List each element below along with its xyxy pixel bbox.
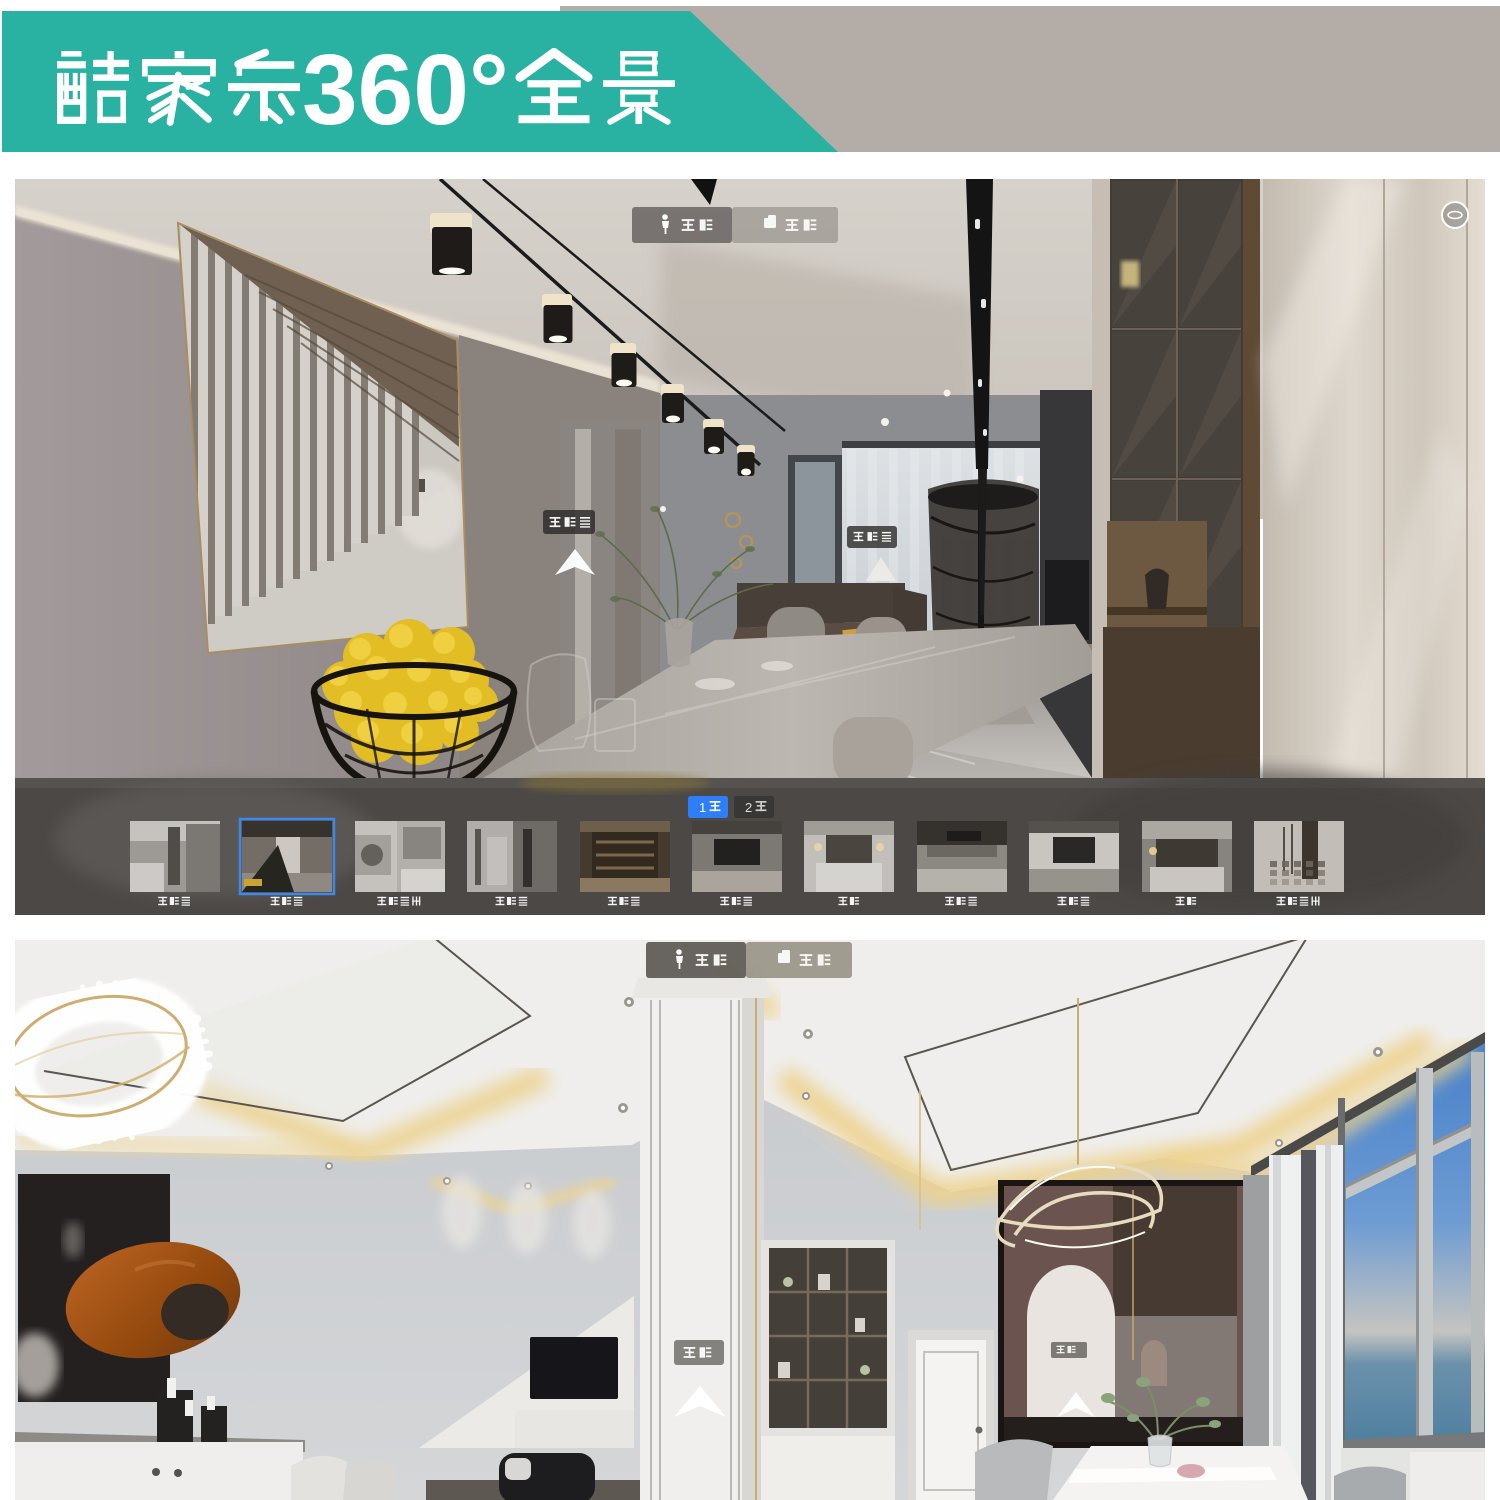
- svg-text:360°: 360°: [302, 34, 509, 146]
- svg-text:2: 2: [745, 800, 752, 815]
- svg-text:1: 1: [699, 800, 706, 815]
